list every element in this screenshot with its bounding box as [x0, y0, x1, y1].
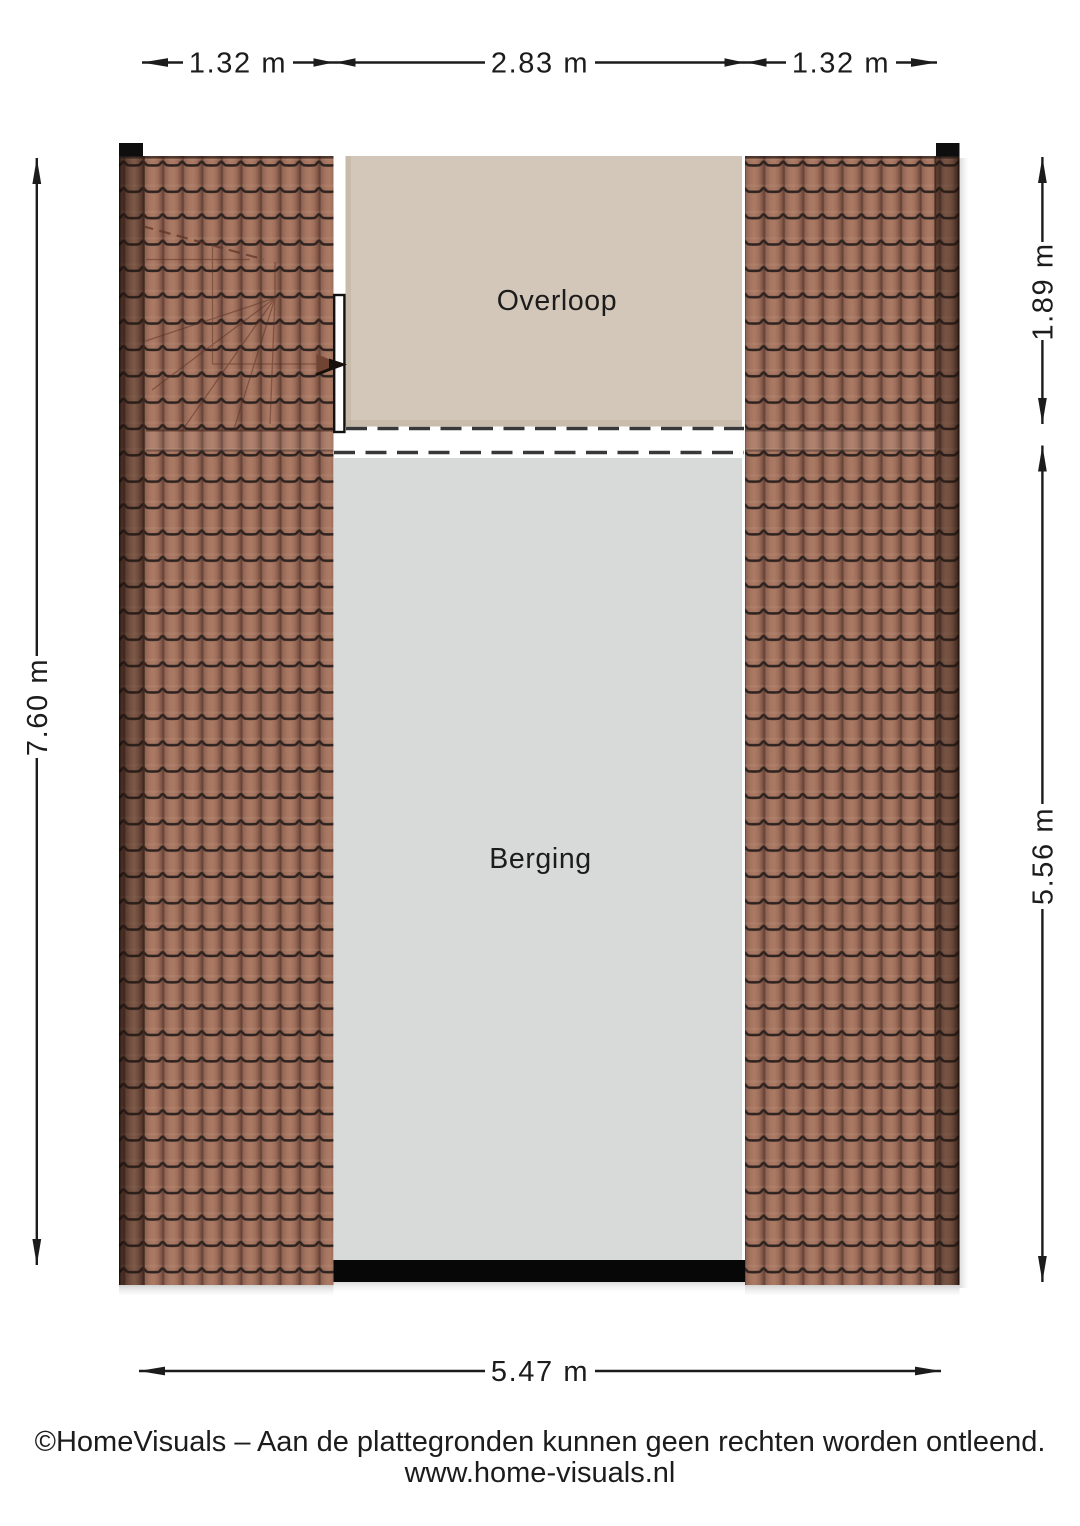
svg-text:5.47 m: 5.47 m — [491, 1356, 589, 1388]
svg-text:5.56 m: 5.56 m — [1027, 807, 1059, 905]
svg-text:©HomeVisuals – Aan de plattegr: ©HomeVisuals – Aan de plattegronden kunn… — [35, 1426, 1046, 1458]
svg-text:7.60 m: 7.60 m — [22, 658, 54, 756]
svg-text:1.89 m: 1.89 m — [1027, 242, 1059, 340]
svg-text:Berging: Berging — [489, 843, 591, 875]
svg-text:Overloop: Overloop — [497, 285, 617, 317]
svg-text:2.83 m: 2.83 m — [491, 48, 589, 80]
svg-text:1.32 m: 1.32 m — [792, 48, 890, 80]
svg-text:1.32 m: 1.32 m — [189, 48, 287, 80]
svg-text:www.home-visuals.nl: www.home-visuals.nl — [404, 1457, 676, 1489]
